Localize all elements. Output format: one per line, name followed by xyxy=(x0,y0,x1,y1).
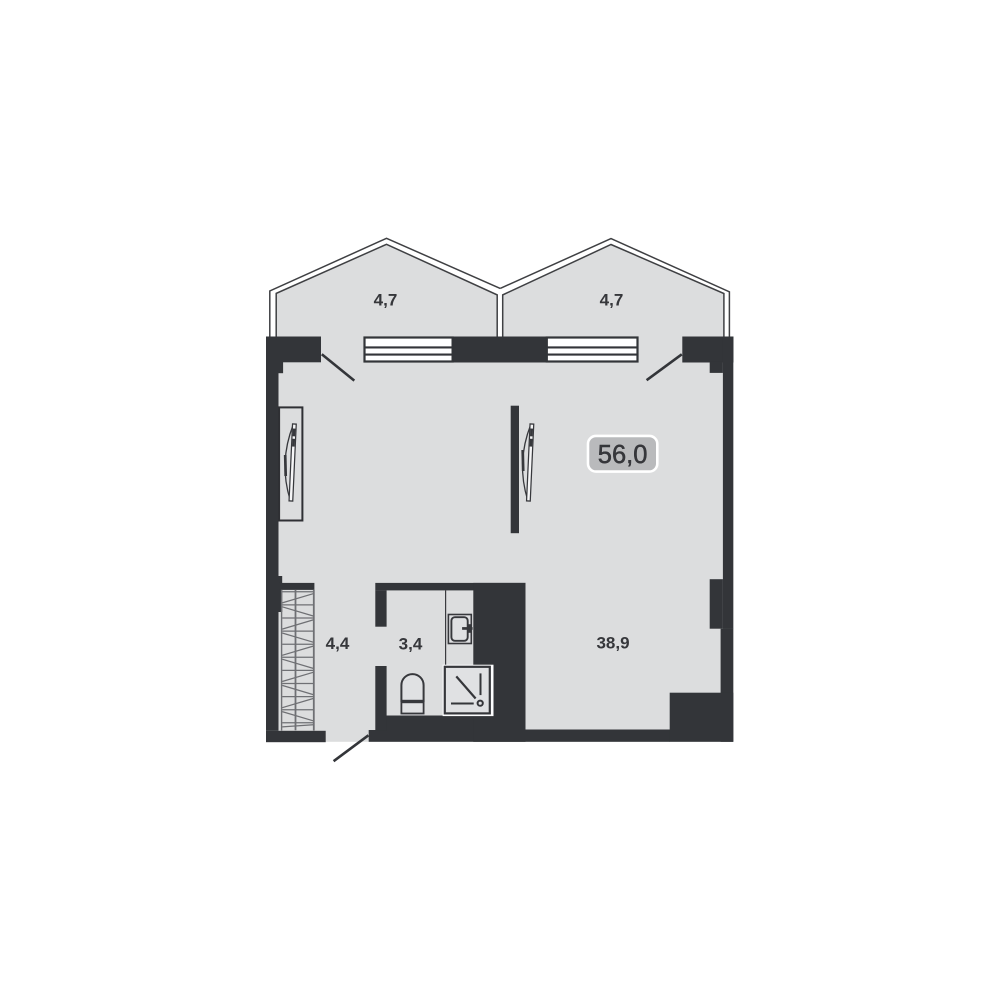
svg-text:56,0: 56,0 xyxy=(598,441,648,469)
svg-text:4,7: 4,7 xyxy=(374,291,398,310)
svg-text:4,4: 4,4 xyxy=(326,634,350,653)
svg-text:4,7: 4,7 xyxy=(600,291,624,310)
svg-text:3,4: 3,4 xyxy=(399,635,423,654)
svg-text:38,9: 38,9 xyxy=(596,634,629,653)
